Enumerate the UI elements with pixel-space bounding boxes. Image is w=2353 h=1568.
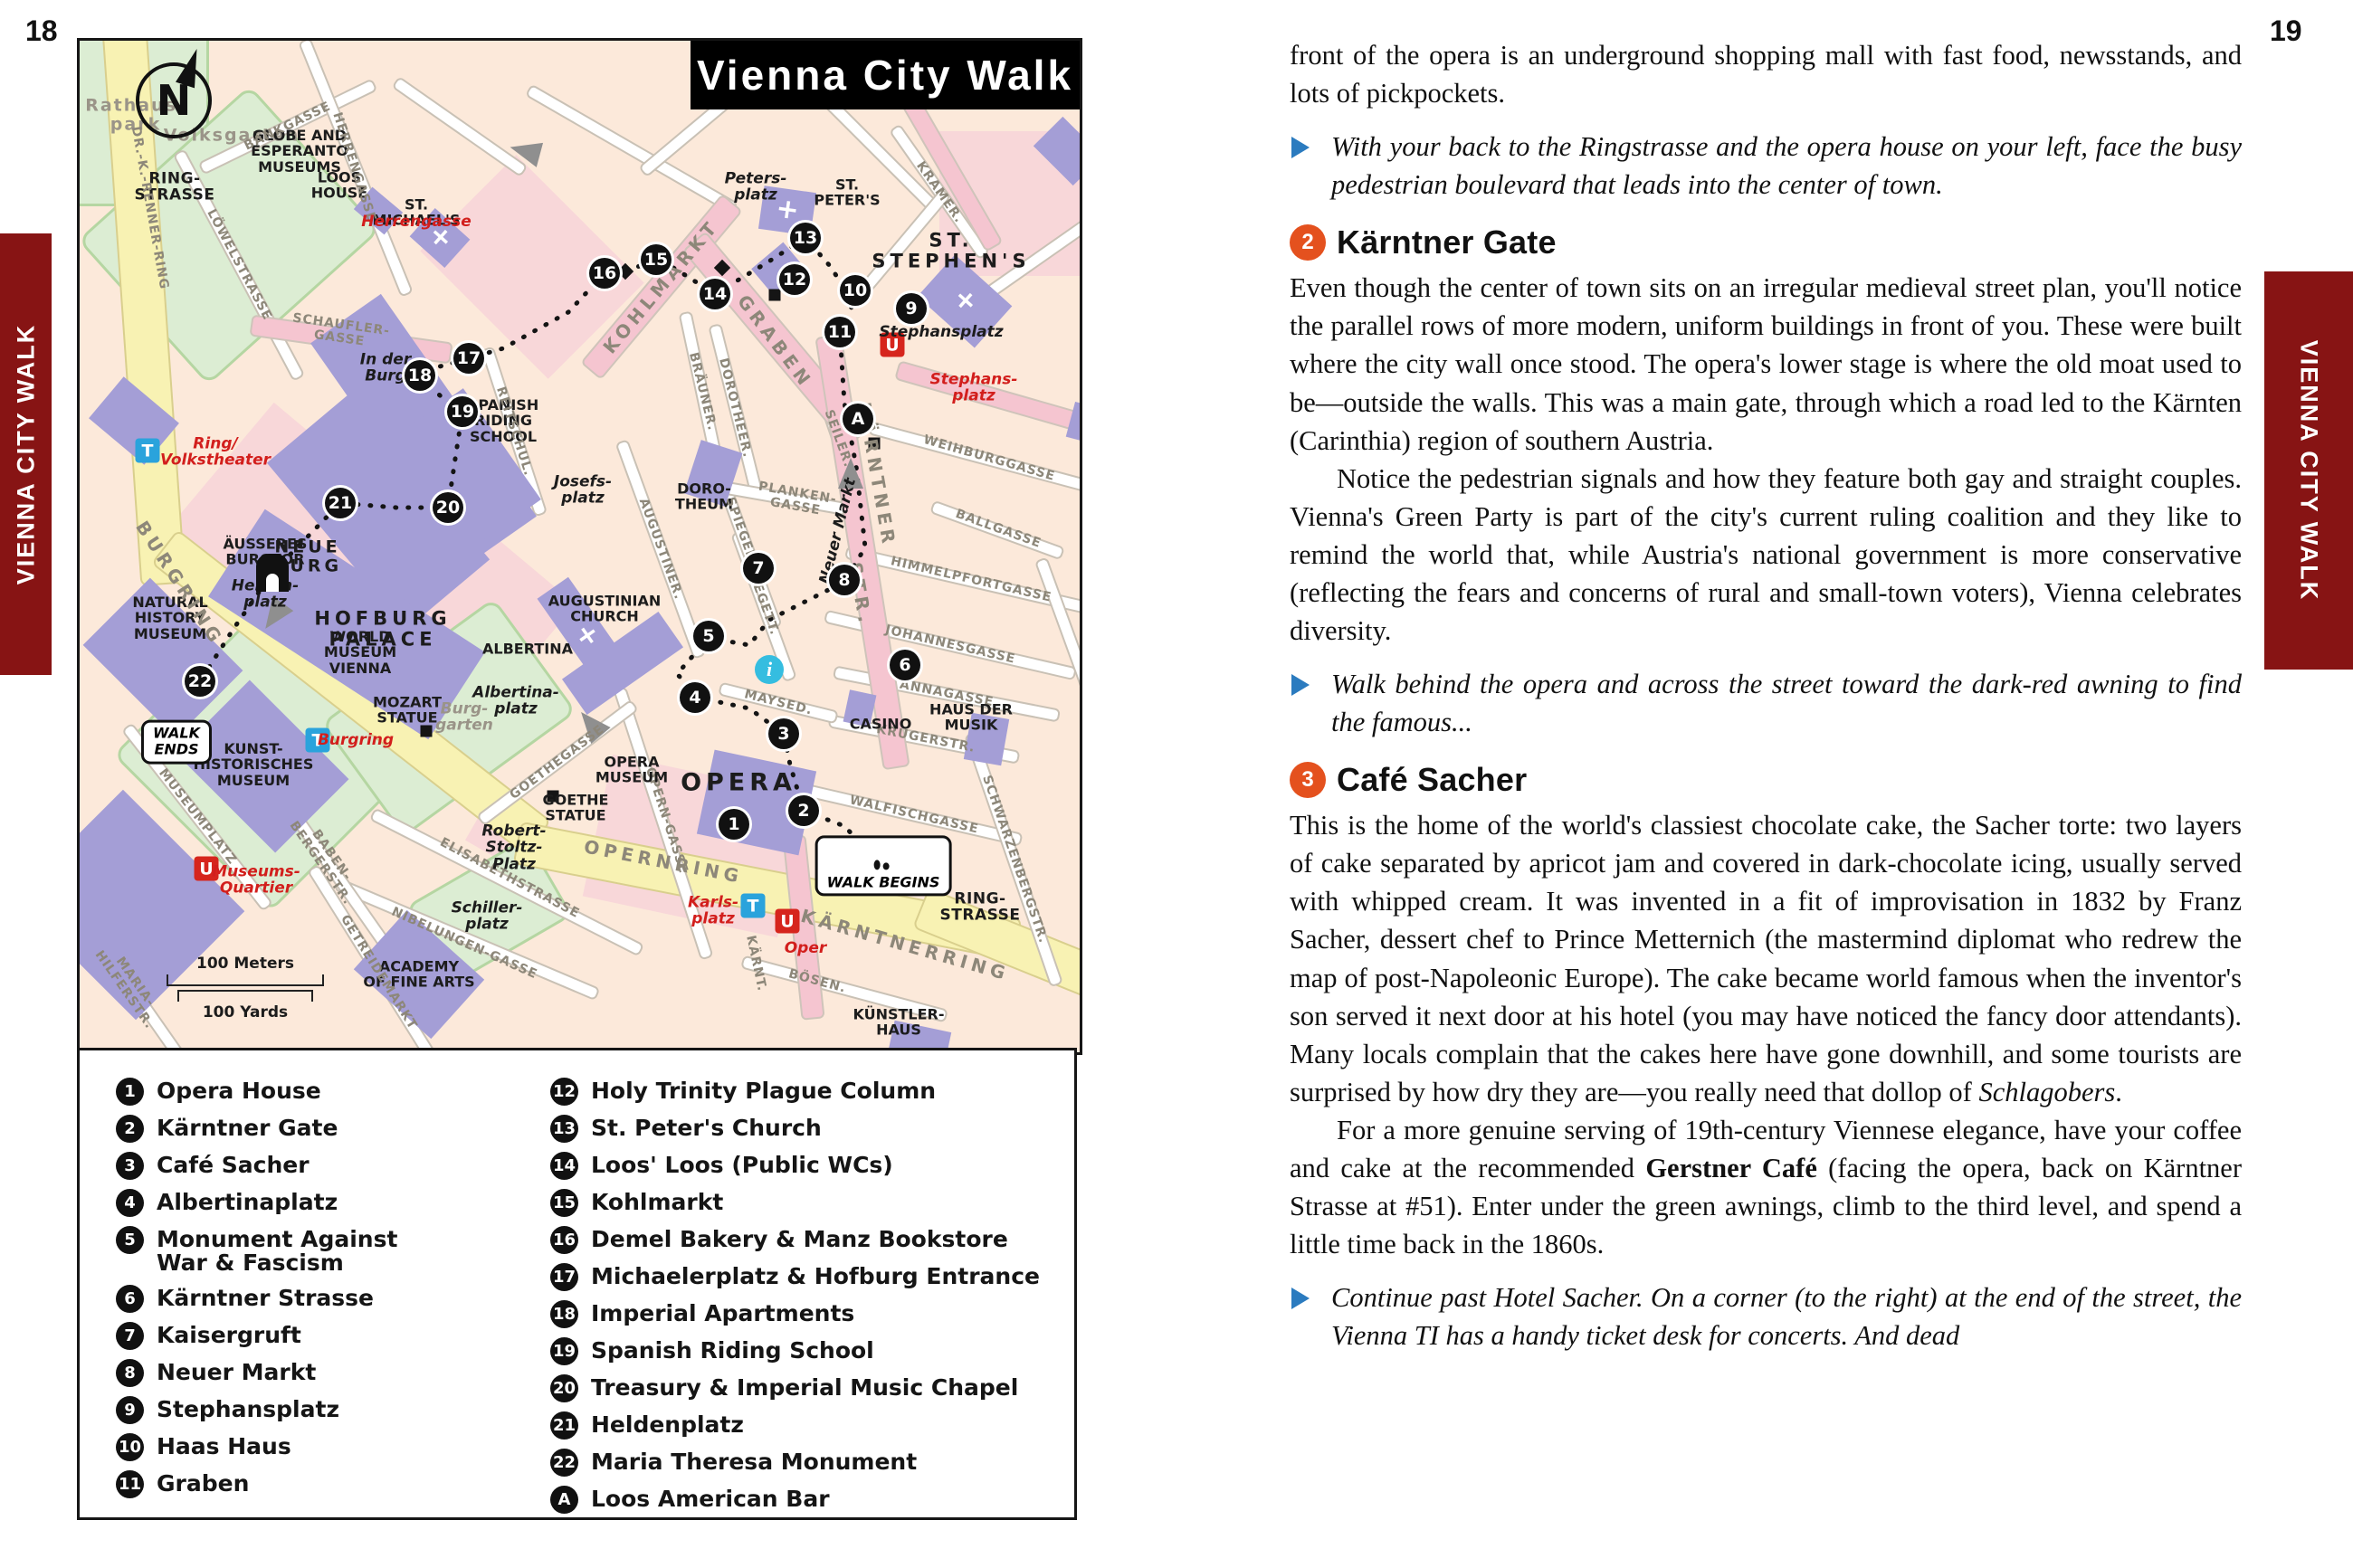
map-title: Vienna City Walk	[691, 41, 1080, 109]
map-stop-marker: 3	[768, 718, 799, 749]
city-walk-map: ++++ TTTUUUiRathaus- parkRING- STRASSEVo…	[77, 38, 1082, 1055]
map-label: Burg- garten	[435, 701, 493, 735]
legend-item: 10Haas Haus	[116, 1433, 550, 1461]
legend-label: Imperial Apartments	[591, 1300, 854, 1326]
direction-arrow-icon	[1291, 1288, 1310, 1309]
legend-item: 2Kärntner Gate	[116, 1115, 550, 1143]
legend-item: 5Monument Against War & Fascism	[116, 1226, 550, 1276]
legend-number-badge: 21	[550, 1411, 578, 1440]
legend-number-badge: 18	[550, 1300, 578, 1328]
legend-label: Loos American Bar	[591, 1486, 830, 1511]
body-paragraph: front of the opera is an underground sho…	[1290, 36, 2242, 112]
map-stop-marker: 11	[824, 317, 855, 347]
scale-bracket	[167, 974, 324, 986]
legend-item: 17Michaelerplatz & Hofburg Entrance	[550, 1263, 1040, 1291]
legend-number-badge: A	[550, 1486, 578, 1514]
scale-yards-label: 100 Yards	[159, 1003, 331, 1022]
legend-label: Spanish Riding School	[591, 1337, 874, 1363]
map-label: AUGUSTINIAN CHURCH	[548, 594, 662, 625]
sidebar-tab-label: VIENNA CITY WALK	[2295, 340, 2323, 602]
legend-number-badge: 5	[116, 1226, 144, 1254]
legend-number-badge: 14	[550, 1152, 578, 1180]
map-label: Burgring	[318, 732, 394, 748]
section-number-badge: 2	[1290, 224, 1326, 261]
map-scale: 100 Meters 100 Yards	[159, 955, 331, 1022]
map-label: Oper	[785, 940, 827, 956]
legend-label: Michaelerplatz & Hofburg Entrance	[591, 1263, 1040, 1288]
map-label: OPERA MUSEUM	[595, 755, 668, 786]
map-label: Karls- platz	[688, 895, 738, 928]
page-number-right: 19	[2270, 14, 2302, 48]
map-label: GOETHE STATUE	[543, 793, 609, 824]
legend-label: Kärntner Gate	[157, 1115, 338, 1140]
legend-item: 15Kohlmarkt	[550, 1189, 1040, 1217]
legend-label: Neuer Markt	[157, 1359, 316, 1384]
walking-direction: Continue past Hotel Sacher. On a corner …	[1290, 1278, 2242, 1354]
text-segment: Continue past Hotel Sacher. On a corner …	[1331, 1282, 2242, 1351]
walking-direction: Walk behind the opera and across the str…	[1290, 665, 2242, 741]
legend-item: 14Loos' Loos (Public WCs)	[550, 1152, 1040, 1180]
legend-item: 11Graben	[116, 1470, 550, 1498]
text-segment: Schlagobers	[1978, 1077, 2115, 1107]
map-label: Robert- Stoltz- Platz	[481, 822, 546, 872]
legend-number-badge: 4	[116, 1189, 144, 1217]
map-label: OPERA	[681, 769, 796, 795]
legend-label: Maria Theresa Monument	[591, 1449, 917, 1474]
legend-item: 9Stephansplatz	[116, 1396, 550, 1424]
legend-label: Loos' Loos (Public WCs)	[591, 1152, 893, 1177]
walk-begins-label: WALK BEGINS	[827, 873, 940, 890]
legend-label: Kärntner Strasse	[157, 1285, 374, 1310]
legend-number-badge: 10	[116, 1433, 144, 1461]
text-segment: This is the home of the world's classies…	[1290, 810, 2242, 1107]
map-stop-marker: 16	[589, 258, 620, 289]
walking-direction: With your back to the Ringstrasse and th…	[1290, 128, 2242, 204]
map-stop-marker: 19	[447, 396, 478, 427]
map-label: ALBERTINA	[482, 641, 573, 656]
map-stop-marker: 17	[453, 343, 484, 374]
legend-number-badge: 16	[550, 1226, 578, 1254]
legend-item: 7Kaisergruft	[116, 1322, 550, 1350]
legend-label: Haas Haus	[157, 1433, 291, 1459]
map-stop-marker: 8	[829, 565, 860, 595]
text-segment: Gerstner Café	[1645, 1153, 1817, 1183]
legend-item: 18Imperial Apartments	[550, 1300, 1040, 1328]
map-label: HOFBURG PALACE	[314, 608, 451, 649]
legend-number-badge: 19	[550, 1337, 578, 1365]
section-number-badge: 3	[1290, 762, 1326, 798]
map-label: Stephansplatz	[879, 324, 1003, 340]
map-label: Museums- Quartier	[212, 864, 300, 898]
tram-stop-icon: T	[136, 439, 160, 463]
legend-item: 13St. Peter's Church	[550, 1115, 1040, 1143]
legend-number-badge: 1	[116, 1078, 144, 1106]
legend-label: Café Sacher	[157, 1152, 310, 1177]
map-stop-marker: 5	[693, 621, 724, 651]
legend-number-badge: 20	[550, 1374, 578, 1402]
map-stop-marker: 6	[890, 650, 920, 680]
map-stop-marker: 13	[790, 223, 821, 253]
text-segment: Notice the pedestrian signals and how th…	[1290, 463, 2242, 646]
statue-square-icon	[421, 726, 433, 737]
legend-item: 3Café Sacher	[116, 1152, 550, 1180]
sidebar-tab-right: VIENNA CITY WALK	[2264, 271, 2353, 670]
legend-item: 6Kärntner Strasse	[116, 1285, 550, 1313]
map-stop-marker: 4	[680, 682, 710, 713]
text-segment: front of the opera is an underground sho…	[1290, 40, 2242, 109]
body-paragraph: Notice the pedestrian signals and how th…	[1290, 460, 2242, 650]
legend-item: 16Demel Bakery & Manz Bookstore	[550, 1226, 1040, 1254]
map-label: RING- STRASSE	[940, 891, 1021, 925]
scale-bracket	[177, 990, 313, 1002]
map-label: Stephans- platz	[930, 372, 1018, 405]
map-stop-marker: 20	[433, 492, 463, 523]
map-label: HAUS DER MUSIK	[929, 702, 1013, 734]
tram-stop-icon: T	[741, 894, 766, 918]
legend-item: 8Neuer Markt	[116, 1359, 550, 1387]
legend-number-badge: 9	[116, 1396, 144, 1424]
legend-label: Treasury & Imperial Music Chapel	[591, 1374, 1018, 1400]
legend-item: ALoos American Bar	[550, 1486, 1040, 1514]
legend-label: Stephansplatz	[157, 1396, 339, 1421]
map-stop-marker: A	[843, 404, 873, 434]
legend-number-badge: 11	[116, 1470, 144, 1498]
section-heading: 3Café Sacher	[1290, 761, 2242, 799]
sidebar-tab-left: VIENNA CITY WALK	[0, 233, 52, 675]
walk-begins-box: WALK BEGINS	[815, 835, 952, 896]
legend-label: Albertinaplatz	[157, 1189, 338, 1214]
legend-item: 12Holy Trinity Plague Column	[550, 1078, 1040, 1106]
body-paragraph: This is the home of the world's classies…	[1290, 806, 2242, 1111]
legend-item: 22Maria Theresa Monument	[550, 1449, 1040, 1477]
map-stop-marker: 21	[325, 488, 356, 518]
map-stop-marker: 7	[743, 553, 774, 584]
map-label: ST. STEPHEN'S	[872, 230, 1030, 271]
legend-label: Kaisergruft	[157, 1322, 301, 1347]
legend-number-badge: 12	[550, 1078, 578, 1106]
legend-label: Heldenplatz	[591, 1411, 744, 1437]
section-title: Kärntner Gate	[1337, 223, 1557, 261]
map-label: Herrengasse	[361, 214, 472, 230]
legend-number-badge: 7	[116, 1322, 144, 1350]
legend-item: 20Treasury & Imperial Music Chapel	[550, 1374, 1040, 1402]
text-segment: Even though the center of town sits on a…	[1290, 272, 2242, 455]
map-stop-marker: 2	[788, 795, 819, 826]
map-stop-marker: 22	[185, 666, 215, 697]
legend-number-badge: 3	[116, 1152, 144, 1180]
map-stop-marker: 14	[700, 279, 730, 309]
legend-number-badge: 6	[116, 1285, 144, 1313]
statue-square-icon	[769, 290, 781, 301]
section-title: Café Sacher	[1337, 761, 1527, 799]
body-paragraph: For a more genuine serving of 19th-centu…	[1290, 1111, 2242, 1263]
legend-label: St. Peter's Church	[591, 1115, 822, 1140]
legend-number-badge: 22	[550, 1449, 578, 1477]
legend-label: Holy Trinity Plague Column	[591, 1078, 936, 1103]
legend-label: Demel Bakery & Manz Bookstore	[591, 1226, 1008, 1251]
map-label: Josefs- platz	[554, 474, 612, 508]
scale-meters-label: 100 Meters	[159, 955, 331, 973]
map-label: MOZART STATUE	[373, 695, 442, 727]
text-segment: Walk behind the opera and across the str…	[1331, 669, 2242, 737]
compass-north-icon: N	[136, 62, 212, 138]
map-label: ST. PETER'S	[814, 177, 880, 209]
text-segment: With your back to the Ringstrasse and th…	[1331, 131, 2242, 200]
map-stop-marker: 15	[641, 244, 672, 275]
ubahn-station-icon: U	[776, 909, 800, 934]
direction-arrow-icon	[1291, 674, 1310, 696]
legend-number-badge: 2	[116, 1115, 144, 1143]
legend-label: Kohlmarkt	[591, 1189, 723, 1214]
legend-label: Graben	[157, 1470, 249, 1496]
direction-arrow-icon	[1291, 137, 1310, 158]
map-label: KÜNSTLER- HAUS	[853, 1007, 944, 1039]
legend-number-badge: 15	[550, 1189, 578, 1217]
text-segment: .	[2115, 1077, 2122, 1107]
legend-item: 19Spanish Riding School	[550, 1337, 1040, 1365]
section-heading: 2Kärntner Gate	[1290, 223, 2242, 261]
sidebar-tab-label: VIENNA CITY WALK	[12, 324, 40, 585]
legend-item: 21Heldenplatz	[550, 1411, 1040, 1440]
burgtor-gate-icon	[256, 554, 289, 592]
map-label: In der Burg	[360, 352, 411, 385]
legend-number-badge: 17	[550, 1263, 578, 1291]
legend-label: Opera House	[157, 1078, 321, 1103]
map-legend: 1Opera House2Kärntner Gate3Café Sacher4A…	[77, 1048, 1077, 1520]
legend-item: 1Opera House	[116, 1078, 550, 1106]
legend-number-badge: 13	[550, 1115, 578, 1143]
tourist-info-icon: i	[755, 655, 784, 684]
map-stop-marker: 10	[840, 275, 871, 306]
legend-item: 4Albertinaplatz	[116, 1189, 550, 1217]
map-label: CASINO	[850, 716, 912, 731]
map-stop-marker: 12	[779, 264, 810, 295]
map-label: Peters- platz	[725, 171, 787, 204]
map-label: Ring/ Volkstheater	[160, 436, 271, 470]
body-paragraph: Even though the center of town sits on a…	[1290, 269, 2242, 459]
legend-label: Monument Against War & Fascism	[157, 1226, 397, 1276]
footprints-icon	[883, 863, 890, 870]
map-stop-marker: 9	[896, 293, 927, 324]
walk-article: front of the opera is an underground sho…	[1290, 36, 2242, 1370]
map-label: Schiller- platz	[452, 900, 523, 934]
map-stop-marker: 1	[719, 809, 749, 840]
book-spread: 18 19 VIENNA CITY WALK VIENNA CITY WALK …	[0, 0, 2353, 1568]
map-stop-marker: 18	[405, 360, 435, 391]
walk-ends-box: WALK ENDS	[141, 720, 212, 765]
page-number-left: 18	[25, 14, 58, 48]
footprints-icon	[874, 860, 881, 870]
legend-number-badge: 8	[116, 1359, 144, 1387]
